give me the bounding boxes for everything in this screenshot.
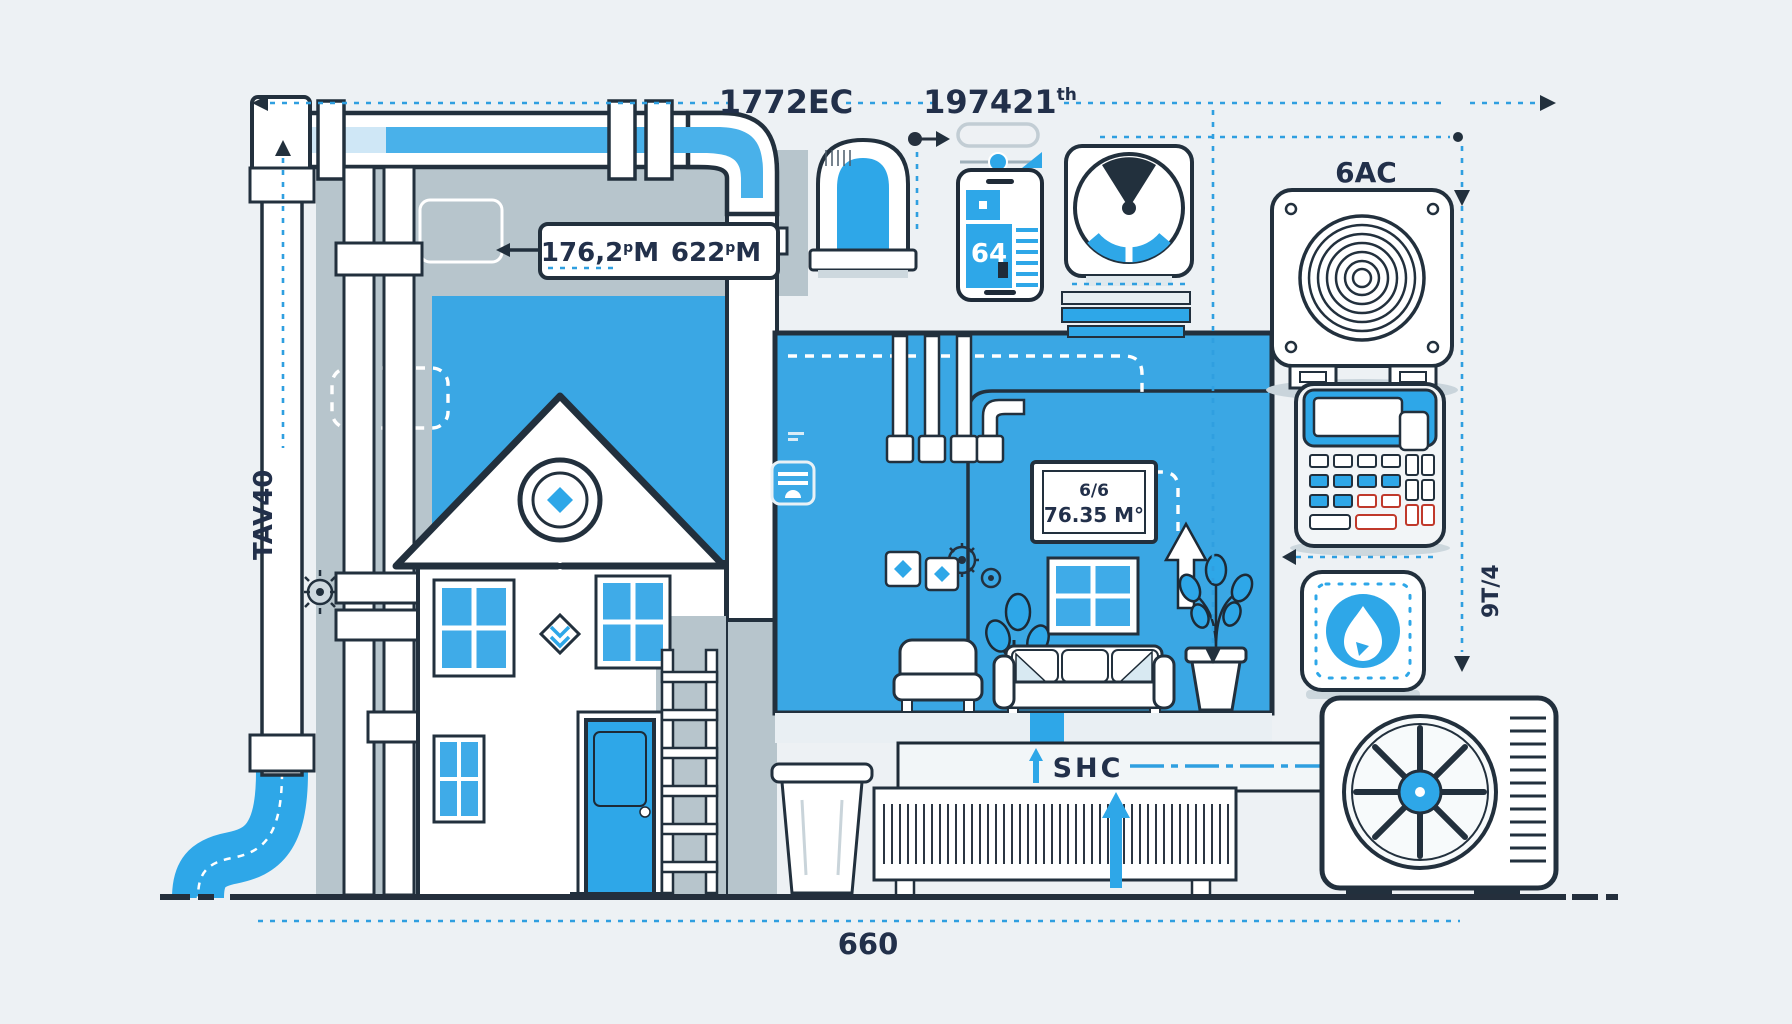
sign-line2: 76.35 M° (1044, 503, 1144, 527)
window-left (434, 580, 514, 676)
screw-icon (1428, 342, 1438, 352)
blue-stub (1030, 713, 1064, 743)
window-right (596, 576, 670, 668)
door-knob-icon (640, 807, 650, 817)
duct-flange-3 (646, 101, 672, 179)
duct-flange-2 (609, 101, 635, 179)
duct-flange-1 (318, 101, 344, 179)
room-sign: 6/6 76.35 M° (1032, 462, 1156, 542)
screw-icon (1428, 204, 1438, 214)
shc-label: SHC (1053, 753, 1124, 784)
door (570, 712, 670, 898)
pipe-coupler-bottom (250, 735, 314, 771)
arch-pipe-unit (810, 140, 916, 278)
phone-tile-dot (979, 201, 987, 209)
arch-shadow (818, 270, 908, 278)
plate-striped (1062, 292, 1190, 304)
duct-measure-right: 622pM (671, 238, 761, 268)
calc-display (1314, 398, 1402, 436)
droplet-tile-icon (1302, 572, 1424, 699)
phone-home-bar (984, 290, 1016, 295)
arch-core (837, 158, 889, 252)
right-rotated-label: 9T/4 (1479, 564, 1504, 618)
ground-line (160, 894, 1618, 900)
duct-label-box: 176,2pM 622pM (496, 224, 778, 278)
ac-unit-label: 6AC (1335, 156, 1397, 189)
couch-icon (994, 646, 1174, 716)
plate-blue-1 (1062, 308, 1190, 322)
room-window (1048, 558, 1138, 634)
big-fan-hub-dot (1415, 787, 1425, 797)
calculator-icon (1282, 384, 1450, 565)
phone-speaker (986, 179, 1014, 184)
plinth (775, 713, 1272, 743)
top-dim-label-left: 1772EC (719, 83, 853, 121)
screw-icon (1286, 204, 1296, 214)
gauge-hub (1122, 201, 1136, 215)
duct-measure-left: 176,2pM (541, 238, 659, 268)
top-dim-label-right: 197421th (923, 83, 1077, 121)
pair-coupler-1 (336, 243, 422, 275)
plate-blue-2 (1068, 326, 1184, 337)
arch-base (810, 250, 916, 270)
armchair-icon (894, 640, 982, 712)
pill-outline (958, 124, 1038, 146)
bottom-dim-label: 660 (838, 927, 899, 961)
phone-panel-chip (998, 262, 1008, 278)
radiator-icon (874, 788, 1236, 896)
window-small (434, 736, 484, 822)
calc-side-key (1400, 412, 1428, 450)
round-window-icon (520, 460, 600, 540)
sign-line1: 6/6 (1079, 481, 1109, 501)
pair-coupler-2 (336, 573, 422, 603)
thermostat-gauge (1062, 146, 1192, 337)
left-rotated-label: TAV40 (249, 470, 279, 560)
hvac-illustration: 176,2pM 622pM (0, 0, 1792, 1024)
screw-icon (1286, 342, 1296, 352)
ac-fan-unit-top: 6AC (1266, 156, 1458, 401)
pair-coupler-3 (336, 610, 422, 640)
living-room: 6/6 76.35 M° (772, 333, 1272, 716)
ac-fan-unit-bottom (1322, 698, 1556, 898)
